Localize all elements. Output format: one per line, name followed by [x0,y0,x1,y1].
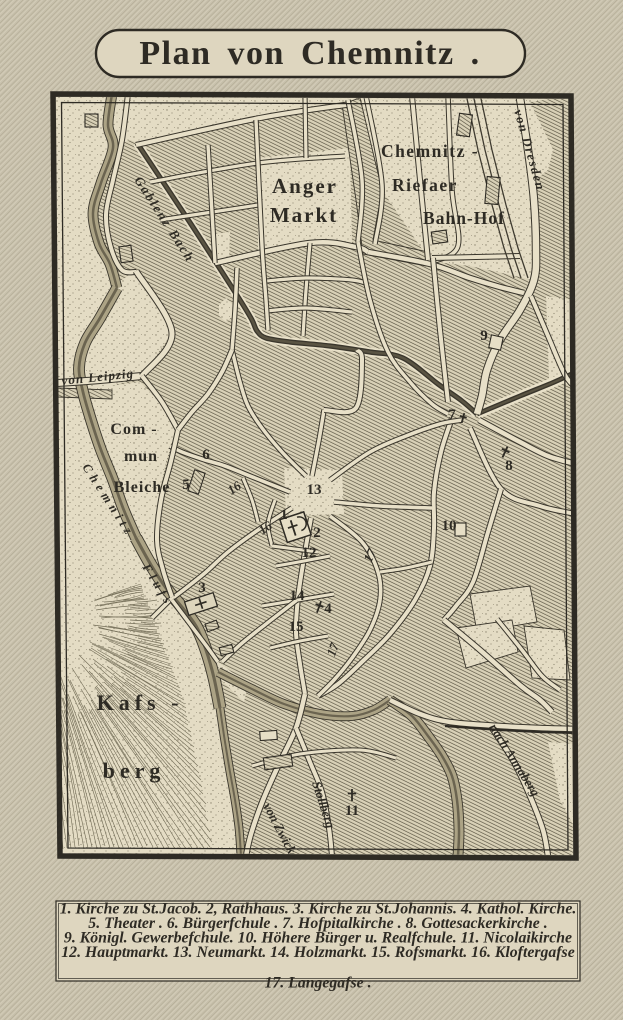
svg-text:Kafs -: Kafs - [97,690,184,715]
svg-text:13: 13 [307,482,322,498]
svg-text:17. Langegafse .: 17. Langegafse . [264,975,371,992]
svg-text:15: 15 [289,619,304,635]
svg-text:Bahn-Hof: Bahn-Hof [423,208,505,228]
svg-text:14: 14 [290,588,306,604]
svg-text:5: 5 [182,477,190,493]
svg-text:8: 8 [505,458,513,474]
svg-text:12. Hauptmarkt. 13. Neumarkt.: 12. Hauptmarkt. 13. Neumarkt. 14. Holzma… [61,944,574,961]
svg-text:berg: berg [103,758,166,783]
svg-text:2: 2 [313,525,321,541]
svg-text:Riefaer: Riefaer [392,175,458,195]
svg-text:3: 3 [198,580,206,596]
svg-text:9: 9 [480,328,488,344]
svg-text:Markt: Markt [270,203,338,227]
svg-text:Anger: Anger [272,174,338,198]
svg-text:mun: mun [124,448,158,465]
svg-text:1: 1 [280,507,288,523]
svg-text:10: 10 [442,518,457,534]
svg-text:Bleiche: Bleiche [114,479,171,496]
svg-text:Chemnitz -: Chemnitz - [381,141,479,161]
svg-text:7: 7 [448,407,456,423]
svg-text:6: 6 [202,447,210,463]
svg-text:Plan von Chemnitz .: Plan von Chemnitz . [139,35,480,72]
svg-text:4: 4 [324,601,332,617]
svg-text:11: 11 [345,803,359,819]
svg-text:12: 12 [302,545,317,561]
svg-text:Com -: Com - [110,421,157,438]
